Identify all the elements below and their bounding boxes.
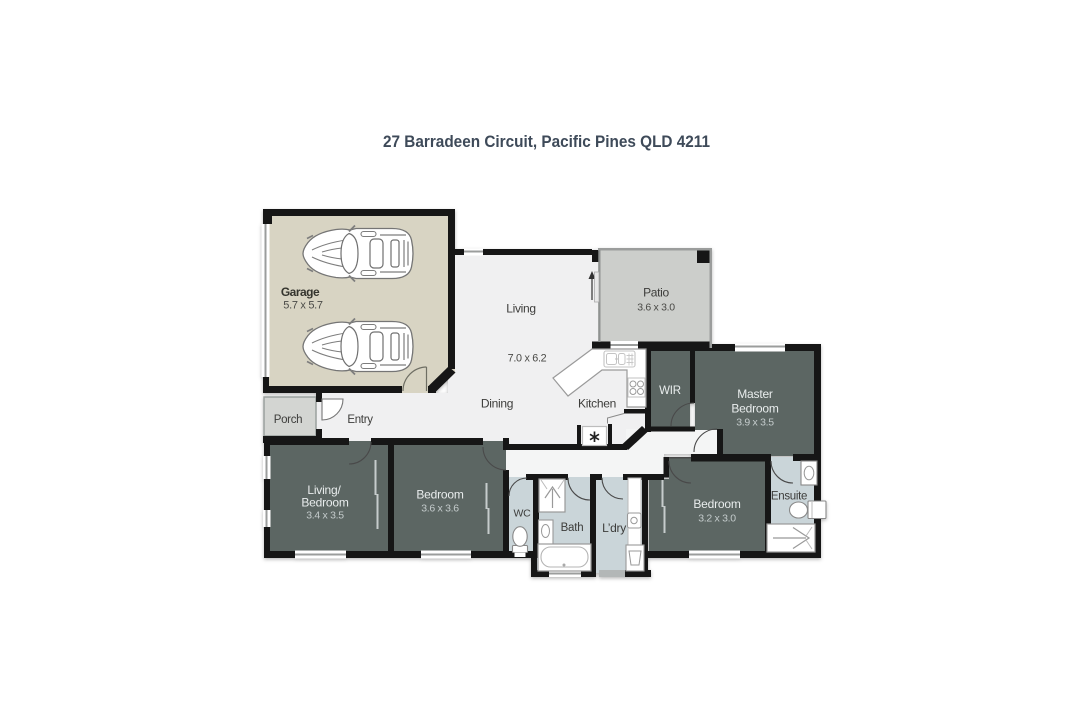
svg-text:3.4 x 3.5: 3.4 x 3.5 bbox=[306, 510, 344, 522]
svg-text:Bedroom: Bedroom bbox=[416, 488, 463, 502]
svg-text:7.0 x 6.2: 7.0 x 6.2 bbox=[508, 353, 547, 365]
svg-text:Ensuite: Ensuite bbox=[771, 491, 807, 503]
svg-text:Bedroom: Bedroom bbox=[731, 402, 778, 416]
svg-text:Kitchen: Kitchen bbox=[578, 397, 616, 411]
svg-text:WIR: WIR bbox=[659, 385, 681, 397]
svg-text:Patio: Patio bbox=[643, 286, 669, 300]
svg-text:Dining: Dining bbox=[481, 397, 513, 411]
svg-text:Bedroom: Bedroom bbox=[693, 497, 740, 511]
svg-text:WC: WC bbox=[513, 508, 531, 520]
svg-text:Bath: Bath bbox=[561, 522, 584, 534]
svg-text:Bedroom: Bedroom bbox=[301, 496, 348, 510]
svg-text:5.7 x 5.7: 5.7 x 5.7 bbox=[283, 300, 323, 312]
svg-text:3.6 x 3.6: 3.6 x 3.6 bbox=[421, 503, 459, 515]
svg-text:3.2 x 3.0: 3.2 x 3.0 bbox=[698, 513, 736, 525]
svg-text:Living: Living bbox=[506, 302, 536, 316]
svg-text:Master: Master bbox=[737, 387, 773, 401]
svg-text:Porch: Porch bbox=[274, 414, 303, 426]
svg-text:Entry: Entry bbox=[347, 414, 373, 426]
svg-text:3.9 x 3.5: 3.9 x 3.5 bbox=[736, 417, 774, 429]
svg-text:L’dry: L’dry bbox=[602, 521, 626, 535]
svg-text:27 Barradeen Circuit, Pacific: 27 Barradeen Circuit, Pacific Pines QLD … bbox=[383, 133, 710, 151]
svg-text:Garage: Garage bbox=[281, 285, 320, 299]
svg-text:3.6 x 3.0: 3.6 x 3.0 bbox=[637, 302, 675, 314]
